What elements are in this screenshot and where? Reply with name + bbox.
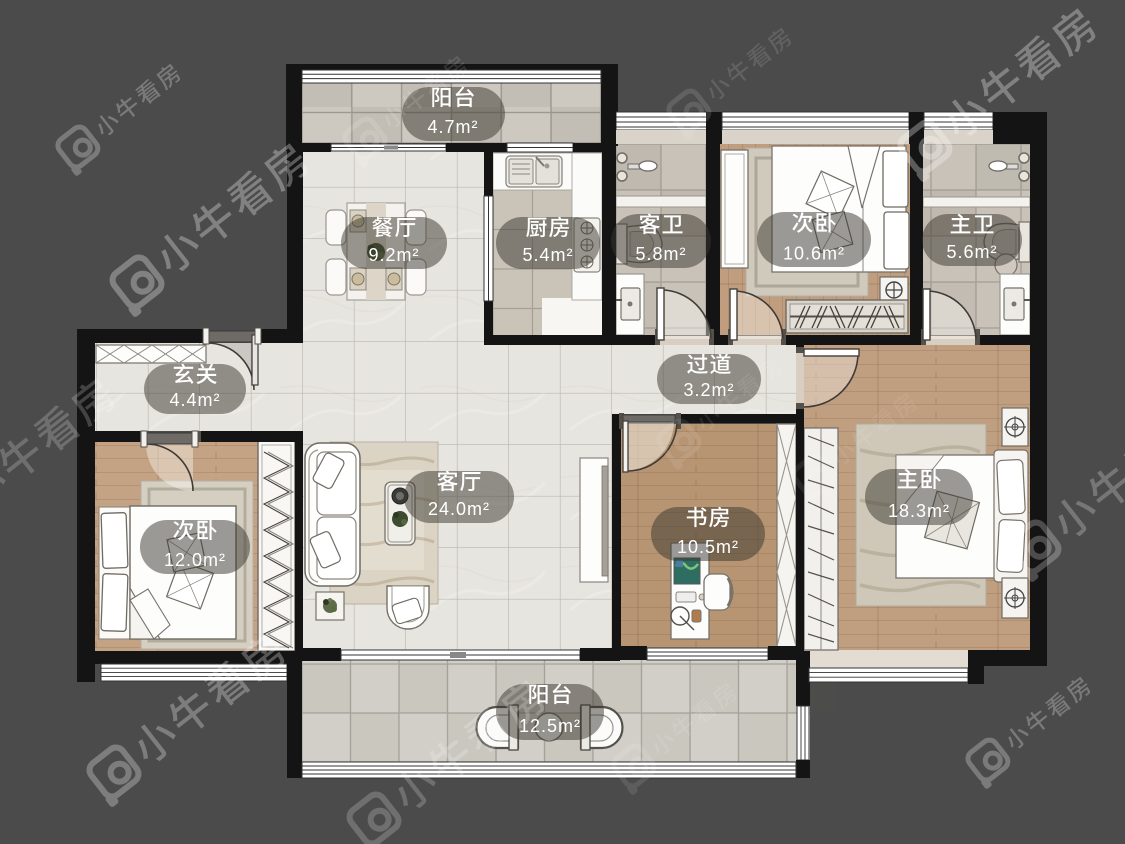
svg-text:18.3m²: 18.3m² [888,501,950,521]
svg-text:4.4m²: 4.4m² [169,390,220,410]
svg-text:12.0m²: 12.0m² [164,550,226,570]
svg-text:9.2m²: 9.2m² [368,245,419,265]
svg-text:5.6m²: 5.6m² [946,242,997,262]
svg-text:10.5m²: 10.5m² [677,537,739,557]
svg-text:5.8m²: 5.8m² [635,244,686,264]
svg-text:4.7m²: 4.7m² [427,117,478,137]
svg-text:5.4m²: 5.4m² [522,245,573,265]
svg-text:10.6m²: 10.6m² [783,244,845,264]
svg-text:24.0m²: 24.0m² [428,499,490,519]
